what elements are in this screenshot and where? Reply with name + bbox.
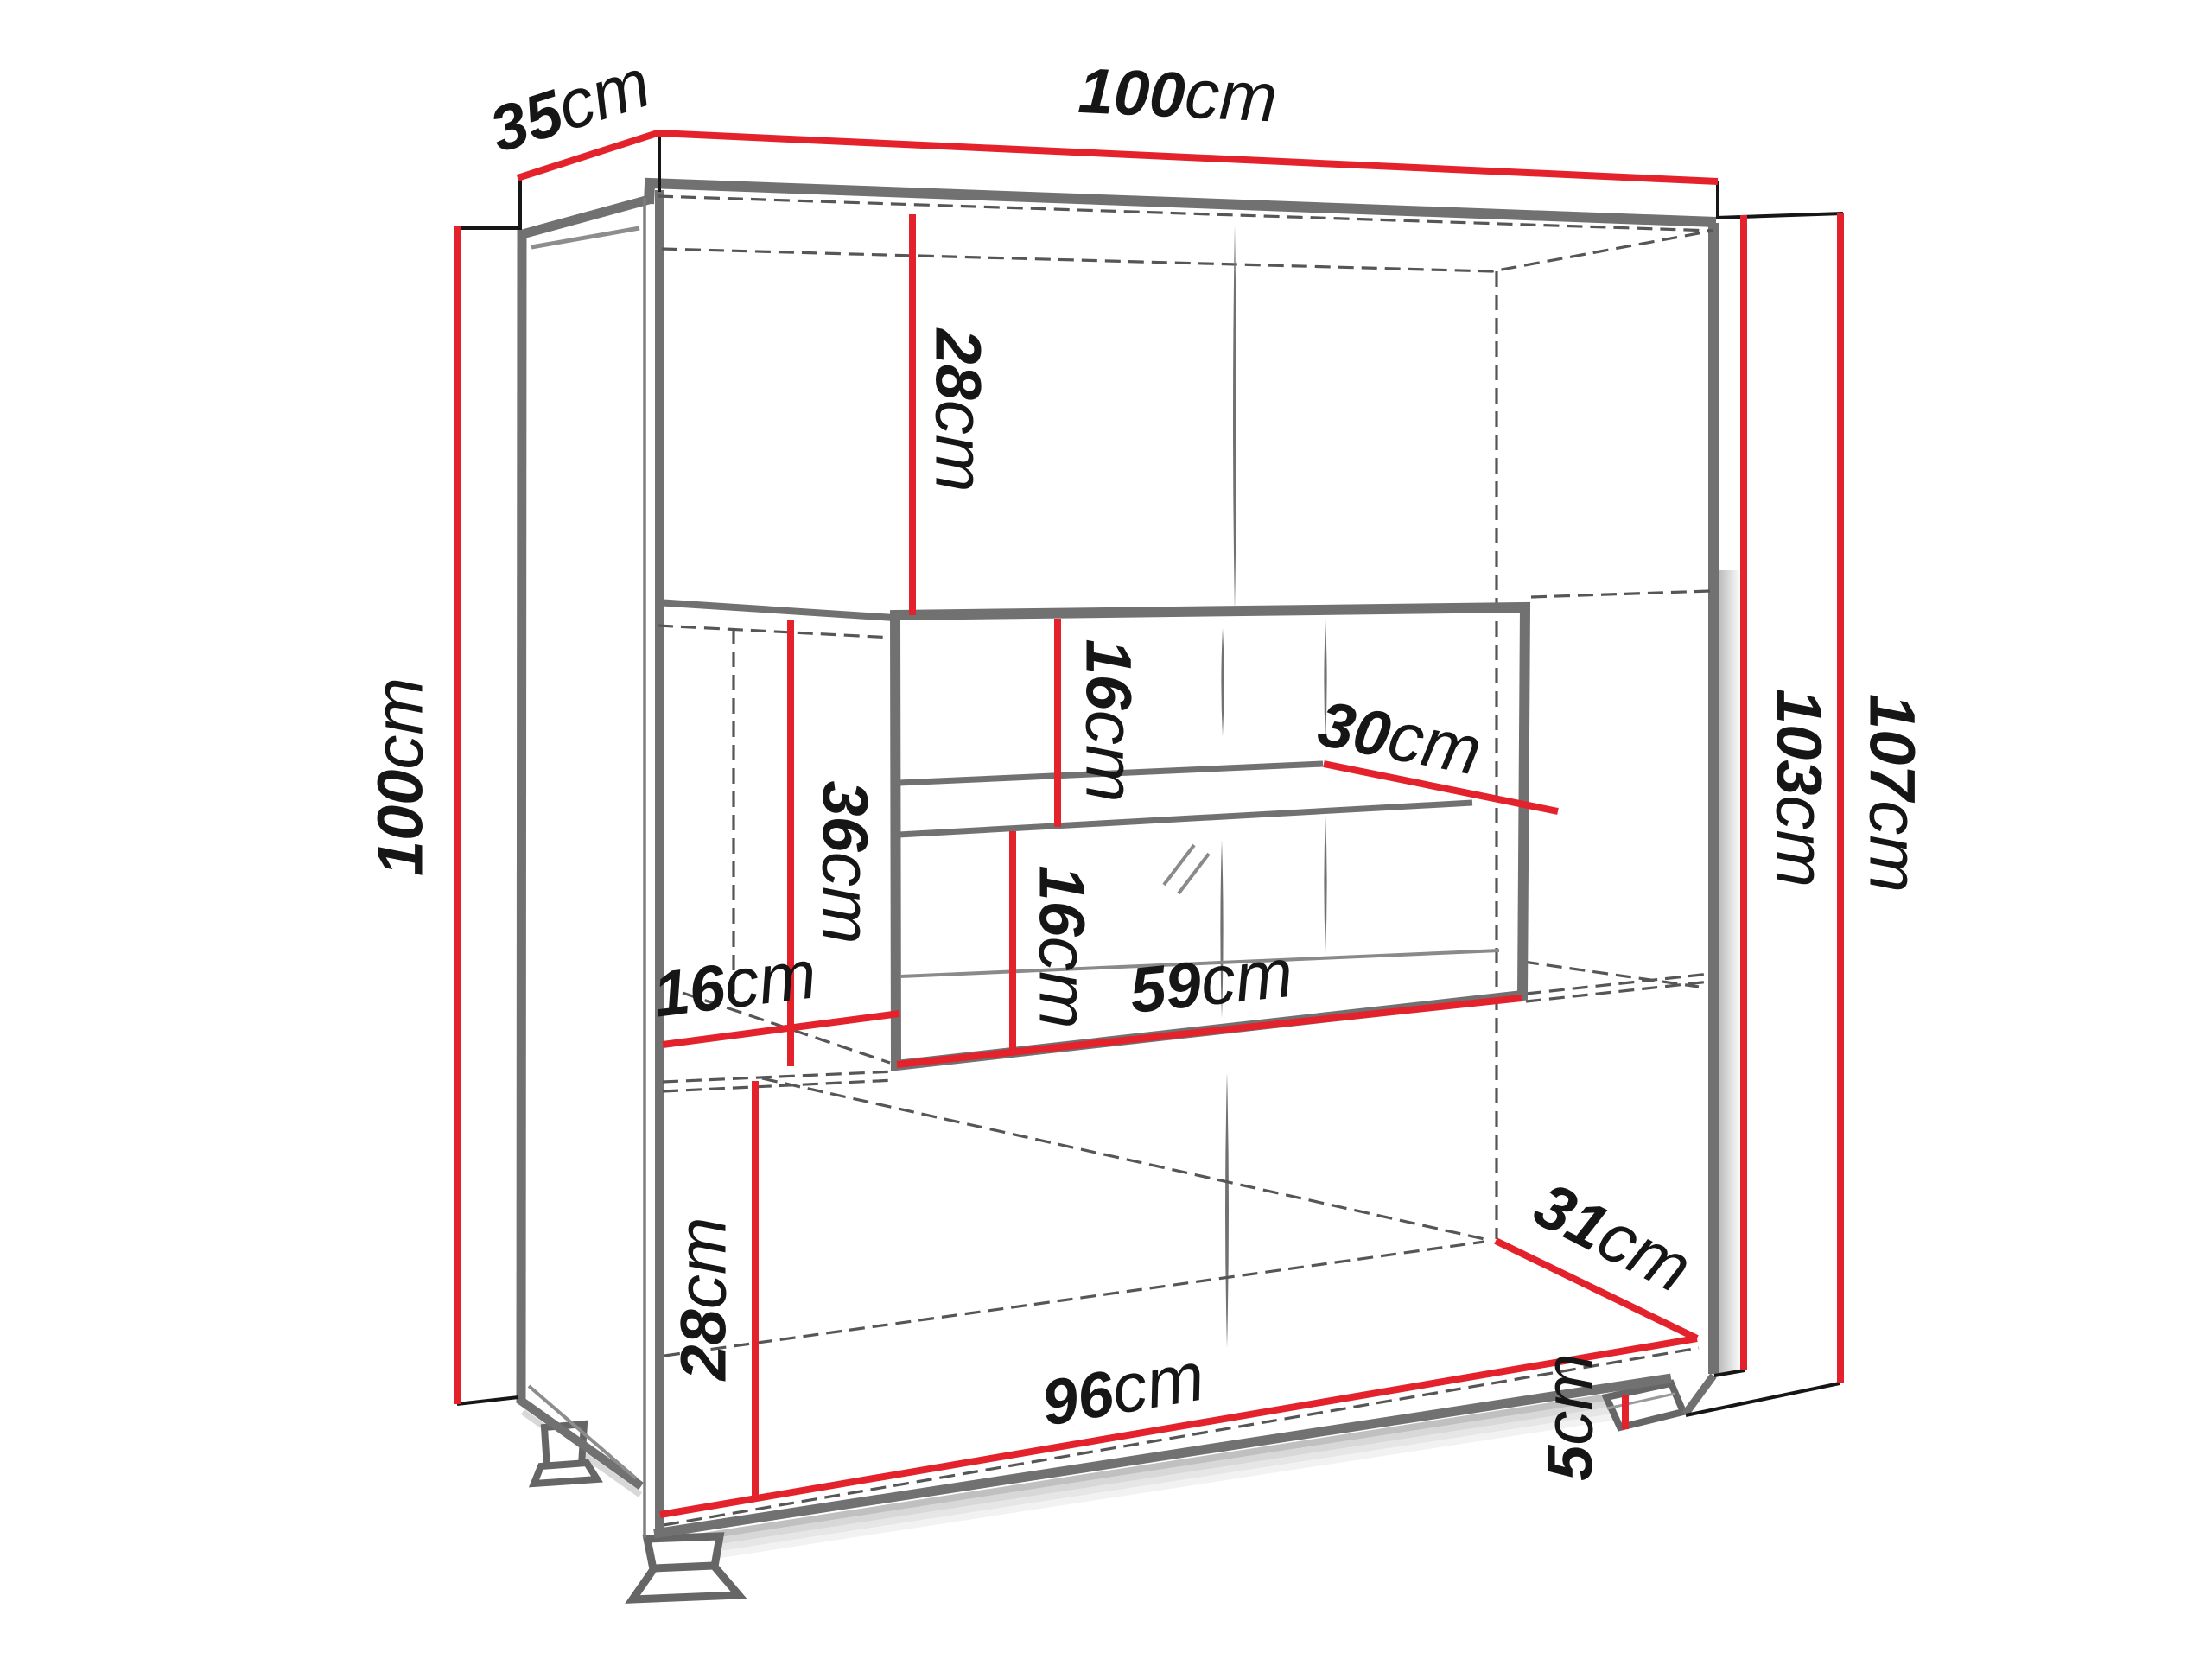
- svg-text:5cm: 5cm: [1529, 1353, 1606, 1481]
- svg-text:28cm: 28cm: [663, 1217, 740, 1382]
- svg-text:16cm: 16cm: [1072, 639, 1149, 803]
- svg-text:100cm: 100cm: [1077, 50, 1279, 137]
- svg-text:107cm: 107cm: [1856, 694, 1933, 893]
- svg-text:103cm: 103cm: [1763, 689, 1840, 887]
- svg-text:100cm: 100cm: [359, 677, 436, 876]
- svg-text:28cm: 28cm: [922, 327, 999, 493]
- svg-text:16cm: 16cm: [1026, 866, 1103, 1029]
- svg-text:36cm: 36cm: [809, 781, 886, 944]
